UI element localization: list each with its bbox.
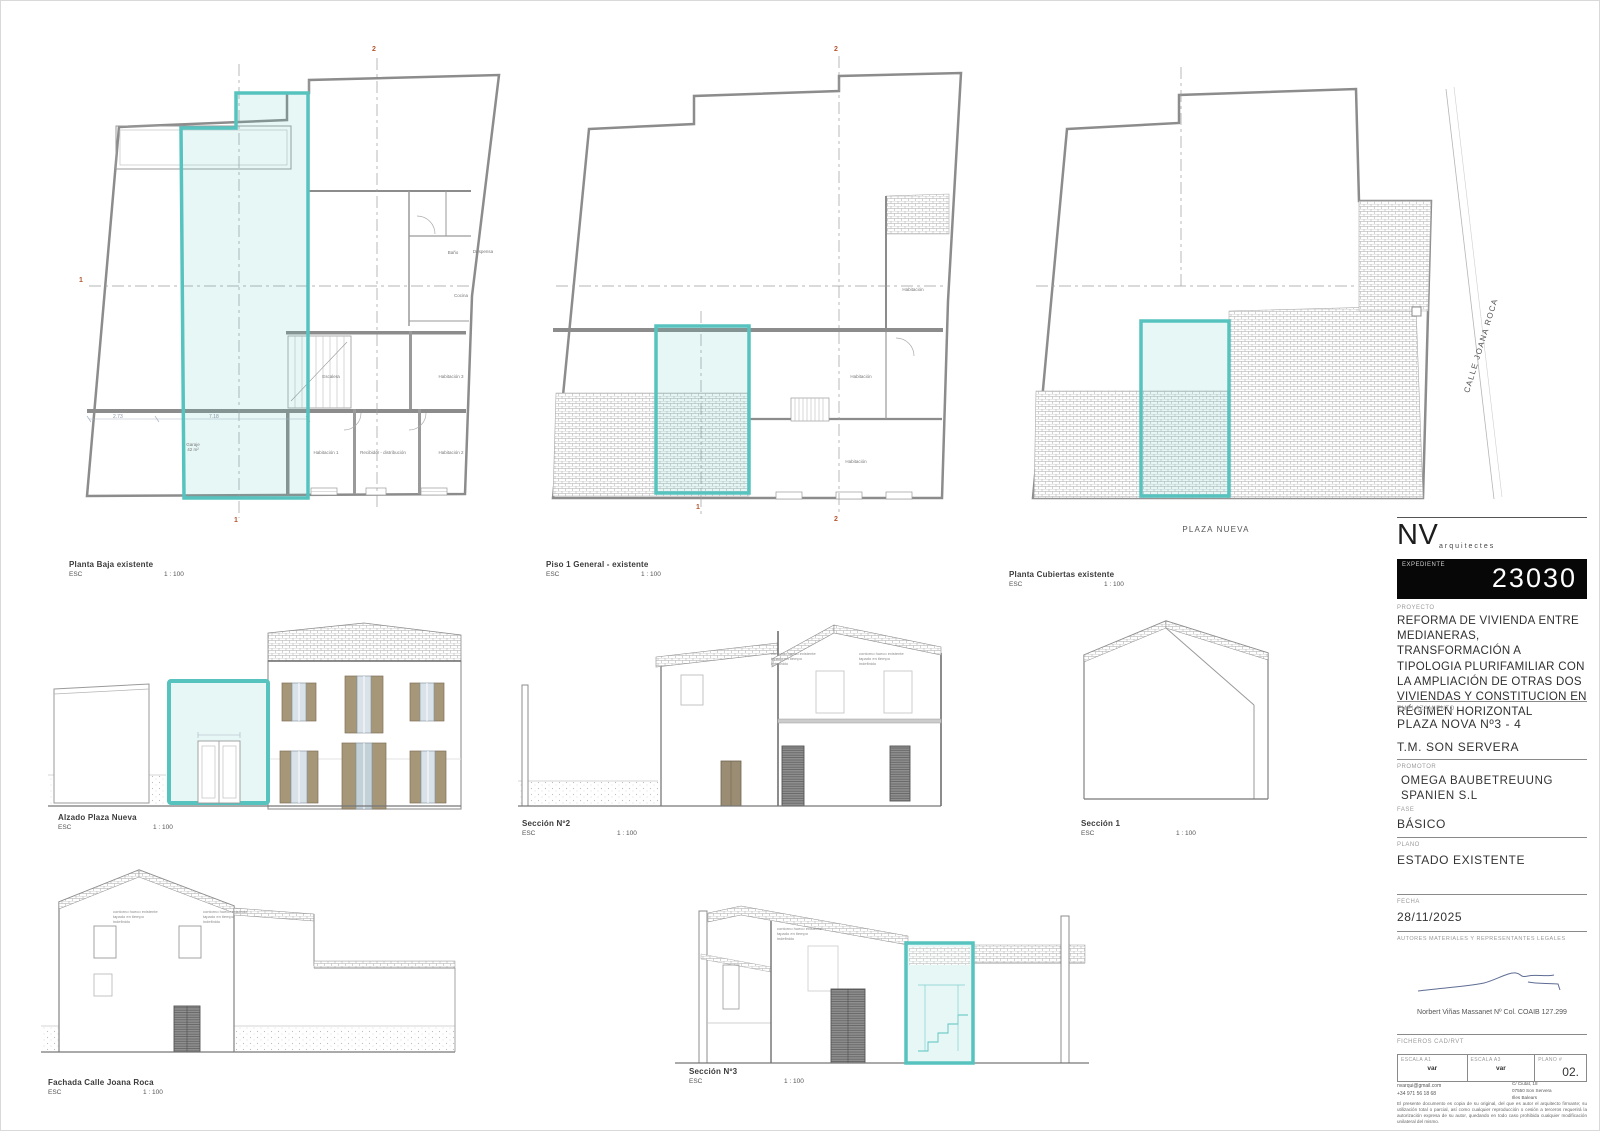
cubiertas-drawing (1026, 59, 1506, 537)
planta-baja-drawing (61, 56, 511, 534)
firm-logo-subtitle: arquitectes (1439, 543, 1495, 550)
room-label: Recibidor - distribución (360, 450, 406, 455)
room-label: Habitación (850, 374, 871, 379)
drawing-title: Piso 1 General - existente (546, 560, 661, 569)
caption-alzado: Alzado Plaza Nueva ESC1 : 100 (58, 813, 173, 831)
room-label-garaje: Garaje 42 m² (186, 442, 200, 452)
room-label: Baño (448, 250, 459, 255)
scale-value: 1 : 100 (784, 1078, 804, 1085)
address: C/ Ciutat, 18 07550 Son Servera Illes Ba… (1512, 1081, 1552, 1102)
room-label: Escalera (322, 374, 340, 379)
esc-label: ESC (69, 571, 164, 578)
caption-seccion2: Sección Nº2 ESC1 : 100 (522, 819, 637, 837)
drawing-title: Sección Nº2 (522, 819, 637, 828)
scale-value: 1 : 100 (143, 1089, 163, 1096)
room-label: Habitación 3 (438, 374, 463, 379)
caption-seccion3: Sección Nº3 ESC1 : 100 (689, 1067, 804, 1085)
annotation-note: contorno hueco existente tapado en tiemp… (777, 926, 823, 941)
proyecto-text: REFORMA DE VIVIENDA ENTRE MEDIANERAS, TR… (1397, 614, 1587, 720)
alzado-plaza-nueva-drawing (46, 613, 466, 813)
drawing-title: Fachada Calle Joana Roca (48, 1078, 163, 1087)
seccion2-drawing (516, 613, 946, 813)
esc-label: ESC (1009, 581, 1104, 588)
seccion3-drawing (673, 881, 1093, 1071)
promotor-line1: OMEGA BAUBETREUUNG (1401, 775, 1553, 787)
scale-table: ESCALA A1 var ESCALA A3 var PLANO # 02. (1397, 1054, 1587, 1082)
room-label: Cocina (454, 293, 468, 298)
promotor-label: PROMOTOR (1397, 764, 1436, 770)
drawing-title: Sección Nº3 (689, 1067, 804, 1076)
annotation-note: contorno hueco existente tapado en tiemp… (859, 651, 905, 666)
scale-value: 1 : 100 (1176, 830, 1196, 837)
contact-info: nvarqui@gmail.com +34 971 56 18 68 (1397, 1083, 1441, 1098)
piso1-drawing (546, 56, 991, 534)
plano-label: PLANO (1397, 842, 1420, 848)
signature (1412, 955, 1572, 1005)
caption-fachada: Fachada Calle Joana Roca ESC1 : 100 (48, 1078, 163, 1096)
section-marker: 2 (834, 46, 838, 53)
caption-piso1: Piso 1 General - existente ESC1 : 100 (546, 560, 661, 578)
fecha-label: FECHA (1397, 899, 1420, 905)
caption-cubiertas: Planta Cubiertas existente ESC1 : 100 (1009, 570, 1124, 588)
highlight-region-seccion3 (906, 943, 973, 1063)
fecha-value: 28/11/2025 (1397, 910, 1462, 924)
esc-label: ESC (58, 824, 153, 831)
arquitecto-firmante: Norbert Viñas Massanet Nº Col. COAIB 127… (1397, 1009, 1587, 1016)
drawing-title: Sección 1 (1081, 819, 1196, 828)
dim-label: 7.18 (209, 414, 219, 420)
email: nvarqui@gmail.com (1397, 1083, 1441, 1091)
section-marker: 2 (372, 46, 376, 53)
section-marker: 1 (79, 277, 83, 284)
section-marker: 2 (834, 516, 838, 523)
drawing-title: Planta Cubiertas existente (1009, 570, 1124, 579)
emplazamiento-line1: PLAZA NOVA Nº3 - 4 (1397, 717, 1521, 731)
esc-label: ESC (522, 830, 617, 837)
annotation-note: contorno hueco existente tapado en tiemp… (113, 909, 159, 924)
promotor-line2: SPANIEN S.L (1401, 790, 1478, 802)
legal-disclaimer: El presente documento es copia de su ori… (1397, 1101, 1587, 1125)
scale-value: 1 : 100 (153, 824, 173, 831)
expediente-box: EXPEDIENTE 23030 (1397, 559, 1587, 599)
plano-number-cell: PLANO # 02. (1535, 1055, 1586, 1081)
esc-label: ESC (689, 1078, 784, 1085)
window-row-lower (280, 743, 446, 809)
dim-label: 2.73 (113, 414, 123, 420)
emplazamiento-label: EMPLAZAMIENTO (1397, 706, 1455, 712)
scale-value: 1 : 100 (164, 571, 184, 578)
fase-label: FASE (1397, 807, 1414, 813)
expediente-number: 23030 (1492, 563, 1577, 594)
emplazamiento-line2: T.M. SON SERVERA (1397, 740, 1519, 754)
esc-label: ESC (1081, 830, 1176, 837)
room-label: Despensa (473, 249, 493, 254)
plano-value: ESTADO EXISTENTE (1397, 853, 1525, 867)
esc-label: ESC (48, 1089, 143, 1096)
drawing-title: Planta Baja existente (69, 560, 184, 569)
highlight-region-cubiertas (1141, 321, 1229, 496)
room-label: Habitación (902, 287, 923, 292)
street-label-plaza-nueva: PLAZA NUEVA (1161, 525, 1271, 534)
ficheros-label: FICHEROS CAD/RVT (1397, 1039, 1464, 1045)
highlight-region-planta-baja (181, 93, 308, 498)
title-block: NV arquitectes EXPEDIENTE 23030 PROYECTO… (1397, 513, 1587, 1119)
fachada-joana-roca-drawing (39, 856, 459, 1071)
proyecto-label: PROYECTO (1397, 605, 1435, 611)
seccion1-drawing (1076, 609, 1276, 809)
room-label: Habitación (845, 459, 866, 464)
escala-a1-cell: ESCALA A1 var (1398, 1055, 1468, 1081)
phone: +34 971 56 18 68 (1397, 1091, 1441, 1099)
highlight-region-piso1 (656, 326, 749, 493)
scale-value: 1 : 100 (1104, 581, 1124, 588)
room-label: Habitación 2 (438, 450, 463, 455)
caption-seccion1: Sección 1 ESC1 : 100 (1081, 819, 1196, 837)
expediente-label: EXPEDIENTE (1402, 562, 1445, 568)
section-marker: 1 (696, 504, 700, 511)
room-label: Habitación 1 (313, 450, 338, 455)
drawing-title: Alzado Plaza Nueva (58, 813, 173, 822)
caption-planta-baja: Planta Baja existente ESC1 : 100 (69, 560, 184, 578)
esc-label: ESC (546, 571, 641, 578)
scale-value: 1 : 100 (641, 571, 661, 578)
section-marker: 1 (234, 517, 238, 524)
autores-label: AUTORES MATERIALES Y REPRESENTANTES LEGA… (1397, 936, 1566, 942)
escala-a3-cell: ESCALA A3 var (1468, 1055, 1536, 1081)
drawing-sheet: Planta Baja existente ESC1 : 100 Piso 1 … (0, 0, 1600, 1131)
annotation-note: contorno hueco existente tapado en tiemp… (771, 651, 817, 666)
firm-logo: NV (1397, 519, 1438, 552)
annotation-note: contorno hueco existente tapado en tiemp… (203, 909, 249, 924)
scale-value: 1 : 100 (617, 830, 637, 837)
fase-value: BÁSICO (1397, 817, 1446, 831)
